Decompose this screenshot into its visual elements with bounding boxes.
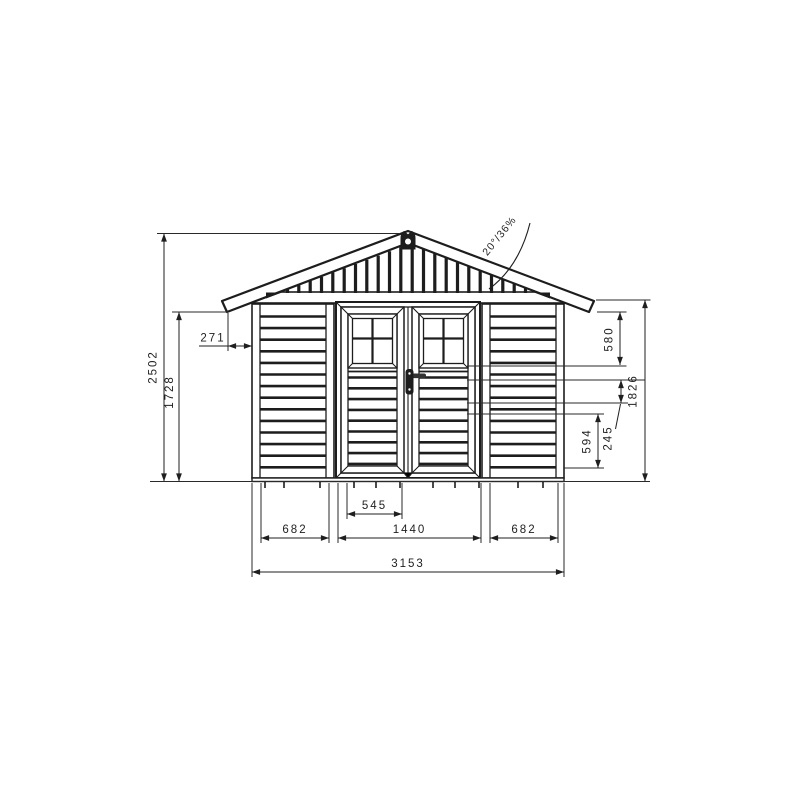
door-window-right (419, 314, 468, 368)
dim-label-1826: 1826 (628, 374, 640, 408)
dim-label-1440: 1440 (393, 524, 427, 536)
door-leaf-right (412, 307, 475, 473)
dim-label-1728: 1728 (164, 375, 176, 409)
base-beam (252, 478, 564, 482)
dim-bottom-545: 545 (347, 500, 402, 514)
wall-panel-left (252, 304, 334, 478)
door-window-left (348, 314, 397, 368)
dim-right-245: 245 (603, 380, 622, 451)
dim-label-545: 545 (362, 500, 387, 512)
dim-label-682-right: 682 (511, 524, 536, 536)
dim-label-2502: 2502 (148, 350, 160, 384)
dim-overhang: 271 (199, 333, 252, 347)
dim-right-594: 594 (582, 414, 599, 468)
wall-panel-right (482, 304, 564, 478)
elevation-svg: 2502 1728 271 580 1826 245 (0, 0, 800, 800)
door-leaf-left (341, 307, 404, 473)
dim-label-271: 271 (200, 333, 225, 345)
roof-pitch-label: 20°/36% (480, 214, 519, 258)
dim-bottom-1440: 1440 (338, 524, 481, 538)
dim-bottom-3153: 3153 (252, 558, 564, 572)
dim-bottom-682-left: 682 (261, 524, 329, 538)
dim-right-1826: 1826 (628, 300, 646, 482)
dim-label-245: 245 (603, 425, 615, 450)
dim-label-3153: 3153 (391, 558, 425, 570)
shed-elevation-drawing: 2502 1728 271 580 1826 245 (0, 0, 800, 800)
dim-label-594: 594 (582, 428, 594, 453)
floor-joist-ticks (265, 482, 543, 488)
dim-label-682-left: 682 (282, 524, 307, 536)
foundation (252, 478, 564, 488)
dim-bottom-682-right: 682 (490, 524, 558, 538)
dim-height-total: 2502 (148, 234, 165, 482)
dim-right-580: 580 (604, 312, 621, 365)
door-unit (336, 302, 480, 478)
dim-height-eave: 1728 (164, 312, 179, 482)
dim-label-580: 580 (604, 326, 616, 351)
